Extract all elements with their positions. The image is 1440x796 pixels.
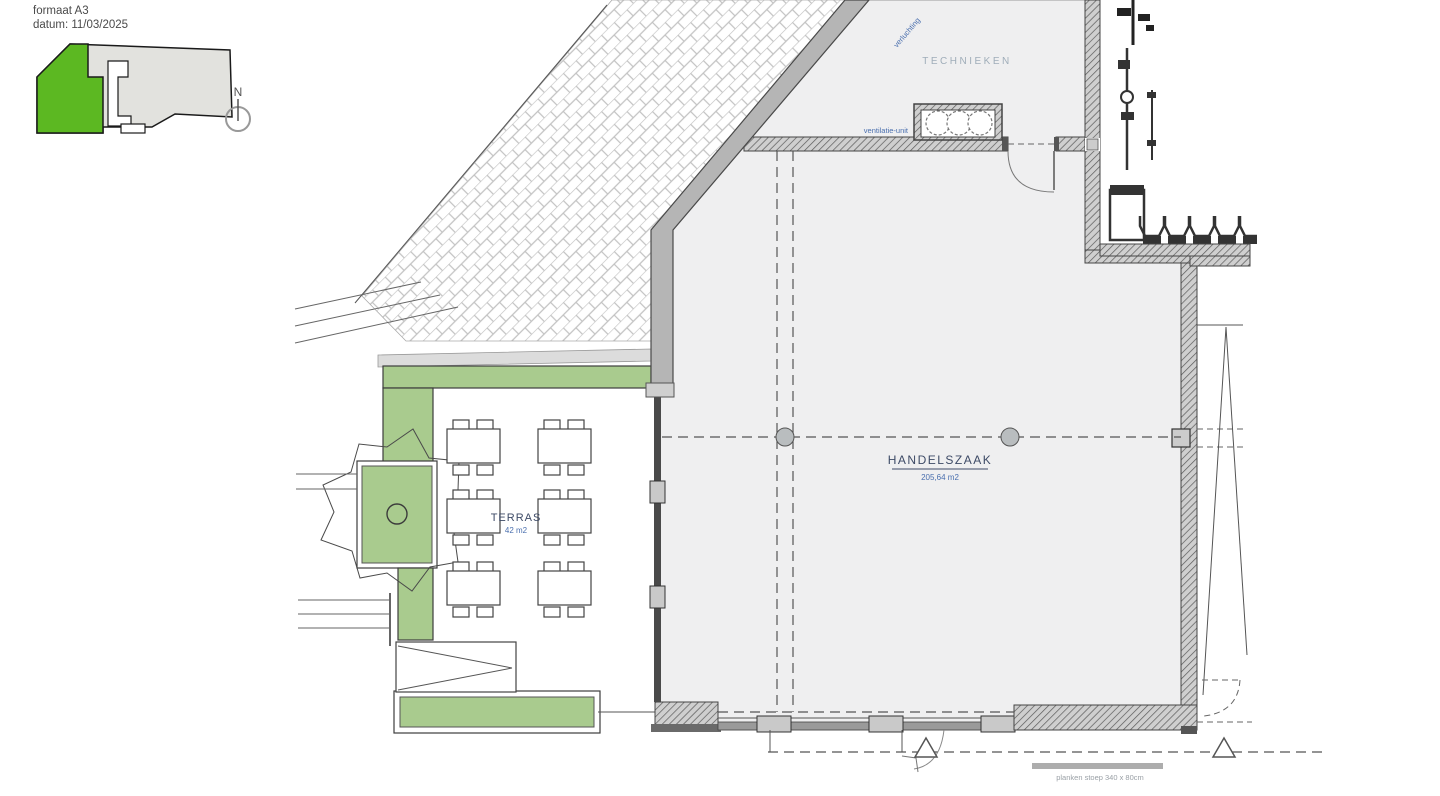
storefront-mullion	[650, 586, 665, 608]
bottom-right-door	[1197, 680, 1252, 722]
tree-planter	[357, 461, 437, 568]
entrance-triangle	[915, 738, 937, 757]
storefront-mullion	[757, 716, 791, 732]
area-label-handelszaak: 205,64 m2	[921, 473, 959, 482]
annex-lines	[1197, 325, 1247, 695]
area-label-terras: 42 m2	[505, 526, 528, 535]
room-label-handelszaak: HANDELSZAAK	[888, 453, 993, 467]
north-label: N	[234, 85, 243, 99]
title-block: formaat A3 datum: 11/03/2025 N	[33, 5, 250, 133]
rack-row	[1140, 216, 1257, 244]
ventilation-unit	[914, 104, 1002, 140]
column	[776, 428, 794, 446]
terrace-table	[447, 420, 500, 475]
annotation-ventilatie-unit: ventilatie-unit	[864, 126, 909, 135]
terrace-table	[538, 562, 591, 617]
room-label-terras: TERRAS	[491, 512, 542, 524]
terrace-table	[538, 420, 591, 475]
floorplan-drawing: TECHNIEKEN verluchting ventilatie-unit H…	[0, 0, 1440, 796]
date-label: datum: 11/03/2025	[33, 19, 128, 31]
entrance-triangle	[1213, 738, 1235, 757]
storefront-mullion	[869, 716, 903, 732]
room-label-technieken: TECHNIEKEN	[922, 56, 1011, 67]
entrance-platform	[1032, 763, 1163, 769]
annotation-platform: planken stoep 340 x 80cm	[1056, 773, 1144, 782]
terrace-table	[447, 562, 500, 617]
format-label: formaat A3	[33, 5, 89, 17]
floorplan-page: TECHNIEKEN verluchting ventilatie-unit H…	[0, 0, 1440, 796]
long-planter	[394, 691, 600, 733]
terrace-table	[538, 490, 591, 545]
corridor-fixtures	[1100, 0, 1257, 266]
sidewalk-edge	[378, 349, 651, 367]
column	[1001, 428, 1019, 446]
column-square	[1172, 429, 1190, 447]
key-plan	[37, 44, 232, 133]
storefront-mullion	[650, 481, 665, 503]
storefront-mullion	[981, 716, 1015, 732]
